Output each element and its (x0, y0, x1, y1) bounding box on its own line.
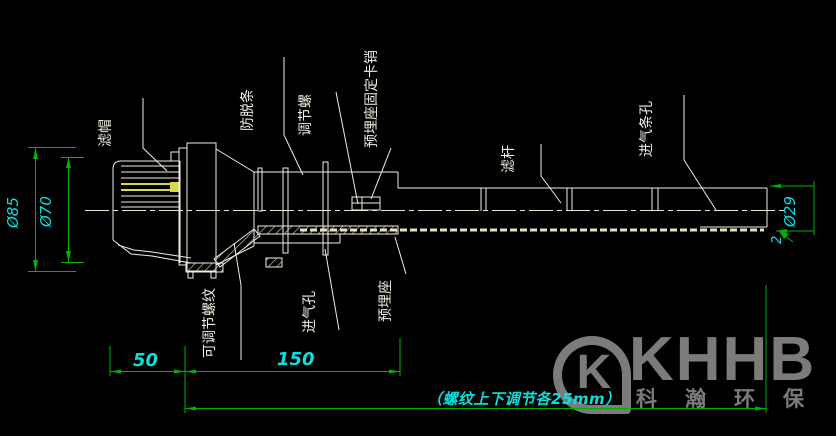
dim-dia85: Ø85 (5, 197, 21, 228)
label-air-inlet-slot: 进气条孔 (639, 101, 656, 157)
label-filter-cap: 滤帽 (98, 119, 115, 147)
dimension-lines (28, 148, 814, 414)
dim-150: 150 (277, 350, 315, 369)
label-embed-seat-fixing-pin: 预埋座固定卡销 (364, 50, 381, 148)
dim-thickness-2: 2 (771, 236, 785, 244)
label-adjust-screw: 调节螺 (298, 94, 315, 136)
label-anti-drop-strip: 防脱条 (240, 89, 257, 131)
label-air-inlet-hole: 进气孔 (302, 291, 319, 333)
cad-canvas: K KHHB 科瀚环保 (0, 0, 836, 436)
label-embedded-seat: 预埋座 (378, 280, 395, 322)
dim-50: 50 (133, 351, 158, 370)
dim-thread-note: （螺纹上下调节各25mm） (427, 388, 621, 409)
leader-lines (143, 57, 716, 360)
dim-dia70: Ø70 (38, 196, 54, 227)
label-filter-rod: 滤杆 (501, 145, 518, 173)
probe-assembly-drawing (0, 0, 836, 436)
dim-dia29: Ø29 (782, 196, 798, 227)
label-adjustable-thread: 可调节螺纹 (202, 288, 219, 358)
